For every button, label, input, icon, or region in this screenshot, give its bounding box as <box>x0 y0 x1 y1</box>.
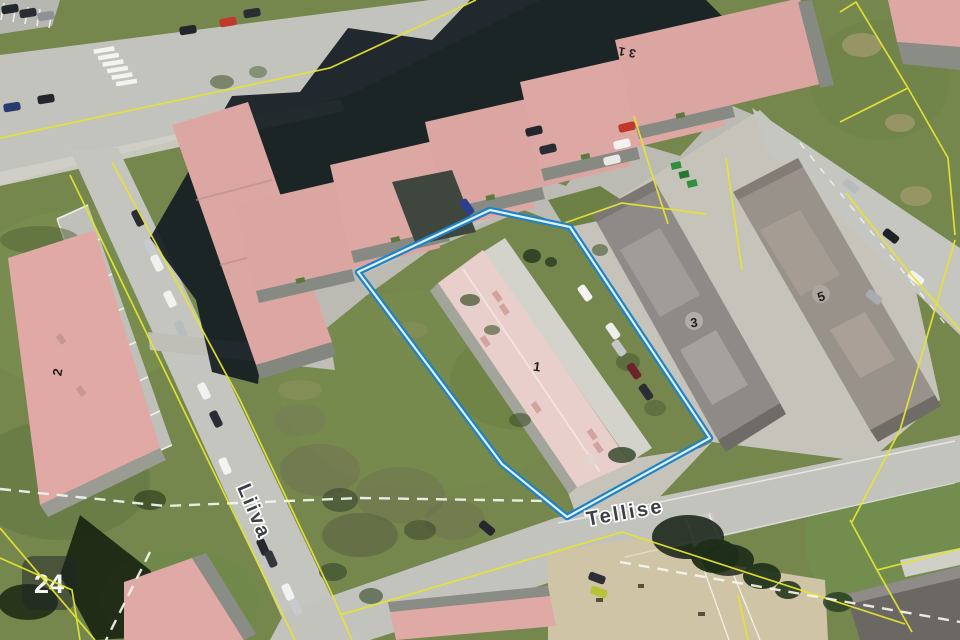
map-canvas[interactable]: 24 Tellise Liiva 31 1 2 <box>0 0 960 640</box>
satellite-map-view[interactable]: 24 Tellise Liiva 31 1 2 <box>0 0 960 640</box>
